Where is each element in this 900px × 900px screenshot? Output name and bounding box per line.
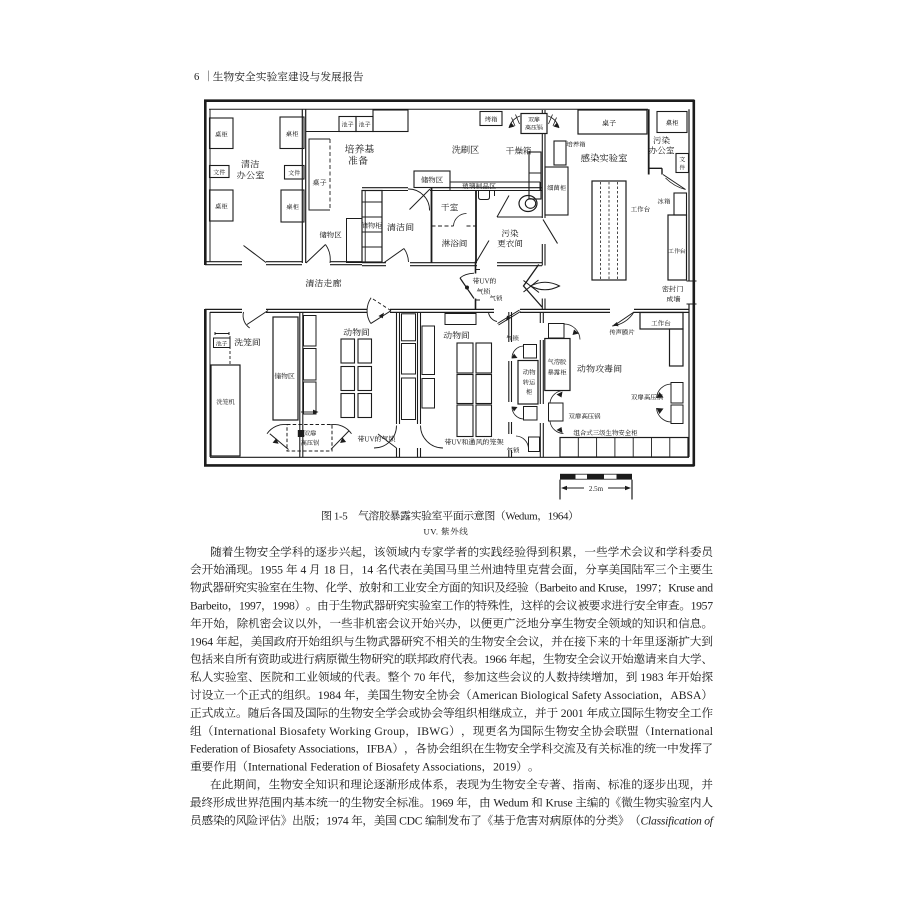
svg-text:柜: 柜 bbox=[526, 388, 533, 396]
svg-text:工作台: 工作台 bbox=[651, 320, 671, 328]
svg-text:带UV的气锁: 带UV的气锁 bbox=[357, 435, 395, 444]
svg-text:烤箱: 烤箱 bbox=[485, 116, 498, 124]
svg-text:高压锅: 高压锅 bbox=[300, 439, 320, 447]
svg-text:员感染的风险评估》出版；1974 年，美国 CDC 编制发布: 员感染的风险评估》出版；1974 年，美国 CDC 编制发布了《基于危害对病原体… bbox=[190, 813, 715, 827]
svg-text:办公室: 办公室 bbox=[237, 171, 265, 181]
svg-text:文件: 文件 bbox=[213, 169, 225, 177]
svg-text:生物安全实验室建设与发展报告: 生物安全实验室建设与发展报告 bbox=[213, 70, 364, 83]
svg-text:2.5m: 2.5m bbox=[589, 485, 604, 493]
svg-text:动物间: 动物间 bbox=[343, 328, 370, 338]
svg-text:在此期间，生物安全知识和理论逐渐形成体系，表现为生物安全专著: 在此期间，生物安全知识和理论逐渐形成体系，表现为生物安全专著、指南、标准的逐步出… bbox=[210, 778, 713, 792]
svg-text:培养箱: 培养箱 bbox=[566, 141, 586, 149]
svg-text:清洁: 清洁 bbox=[241, 160, 260, 170]
svg-text:培养基: 培养基 bbox=[345, 144, 375, 156]
svg-text:淋浴间: 淋浴间 bbox=[442, 239, 468, 249]
svg-text:暴露柜: 暴露柜 bbox=[548, 369, 568, 377]
svg-text:最终形成世界范围内基本统一的生物安全标准。1969 年，由: 最终形成世界范围内基本统一的生物安全标准。1969 年，由 Wedum 和 Kr… bbox=[190, 795, 713, 809]
svg-text:储物区: 储物区 bbox=[421, 176, 444, 185]
svg-text:带UV的: 带UV的 bbox=[472, 277, 496, 286]
svg-text:6: 6 bbox=[194, 72, 199, 83]
svg-text:洗笼间: 洗笼间 bbox=[234, 338, 261, 348]
svg-text:气锁: 气锁 bbox=[490, 295, 503, 303]
svg-text:1964 年起，美国政府开始组织与生物武器研究不相关的生物安: 1964 年起，美国政府开始组织与生物武器研究不相关的生物安全会议，并在接下来的… bbox=[190, 634, 713, 648]
svg-text:文件: 文件 bbox=[288, 169, 300, 177]
svg-text:洗刷区: 洗刷区 bbox=[452, 145, 480, 155]
svg-text:Barbeito，1997，1998）。由于生物武器研究实验: Barbeito，1997，1998）。由于生物武器研究实验室工作的特殊性，这样… bbox=[190, 599, 713, 613]
svg-text:气锁: 气锁 bbox=[506, 335, 519, 343]
svg-text:桌子: 桌子 bbox=[602, 119, 616, 128]
svg-text:桌子: 桌子 bbox=[313, 178, 327, 187]
svg-text:私人实验室、医院和工业领域的代表。整个 70 年代，参加这些: 私人实验室、医院和工业领域的代表。整个 70 年代，参加这些会议的人数持续增加，… bbox=[190, 670, 713, 684]
svg-text:洗笼机: 洗笼机 bbox=[216, 398, 235, 406]
svg-text:UV. 紫外线: UV. 紫外线 bbox=[424, 527, 469, 537]
svg-text:桌柜: 桌柜 bbox=[666, 119, 679, 127]
svg-text:随着生物安全学科的逐步兴起，该领域内专家学者的实践经验得到积: 随着生物安全学科的逐步兴起，该领域内专家学者的实践经验得到积累，一些学术会议和学… bbox=[210, 545, 713, 559]
svg-text:储物区: 储物区 bbox=[274, 372, 295, 381]
svg-text:双扉: 双扉 bbox=[304, 430, 317, 438]
svg-text:感染实验室: 感染实验室 bbox=[581, 153, 628, 165]
svg-text:重要作用（International Federation: 重要作用（International Federation of Biosafe… bbox=[190, 761, 540, 774]
svg-text:带UV和通风的笼架: 带UV和通风的笼架 bbox=[444, 438, 504, 447]
svg-text:气锁: 气锁 bbox=[477, 287, 491, 296]
svg-text:双扉: 双扉 bbox=[528, 117, 540, 124]
svg-text:清洁间: 清洁间 bbox=[387, 223, 414, 233]
svg-text:高压锅: 高压锅 bbox=[524, 125, 543, 132]
svg-text:双扉高压锅: 双扉高压锅 bbox=[569, 413, 602, 421]
svg-text:池子: 池子 bbox=[358, 121, 371, 129]
svg-text:讨设立一个正式的组织。1984 年，美国生物安全协会（Ame: 讨设立一个正式的组织。1984 年，美国生物安全协会（American Biol… bbox=[190, 688, 713, 702]
svg-text:气溶胶: 气溶胶 bbox=[548, 358, 568, 366]
svg-text:件: 件 bbox=[679, 164, 685, 172]
svg-text:更衣间: 更衣间 bbox=[497, 239, 523, 249]
svg-text:清洁走廊: 清洁走廊 bbox=[305, 279, 341, 289]
svg-text:桌柜: 桌柜 bbox=[286, 130, 299, 138]
svg-text:办公室: 办公室 bbox=[649, 146, 675, 156]
svg-text:污染: 污染 bbox=[501, 229, 519, 239]
svg-text:动物攻毒间: 动物攻毒间 bbox=[577, 364, 622, 374]
svg-text:桌柜: 桌柜 bbox=[286, 203, 299, 211]
svg-text:准备: 准备 bbox=[348, 155, 368, 167]
svg-text:转运: 转运 bbox=[523, 379, 536, 387]
svg-text:工作台: 工作台 bbox=[631, 206, 651, 214]
svg-text:正式成立。随后各国及国际的生物安全学会或协会等组织相继成立，: 正式成立。随后各国及国际的生物安全学会或协会等组织相继成立，并于 2001 年成… bbox=[190, 706, 713, 720]
svg-text:包括来自所有资助或进行病原微生物研究的联邦政府代表。1966: 包括来自所有资助或进行病原微生物研究的联邦政府代表。1966 年起，生物安全会议… bbox=[190, 652, 713, 666]
svg-text:桌柜: 桌柜 bbox=[215, 203, 228, 211]
svg-text:动物间: 动物间 bbox=[443, 331, 470, 341]
svg-text:文: 文 bbox=[679, 157, 685, 164]
svg-text:玻璃制品区: 玻璃制品区 bbox=[462, 182, 496, 190]
svg-text:成墙: 成墙 bbox=[667, 296, 681, 304]
svg-text:气锁: 气锁 bbox=[507, 447, 520, 455]
svg-text:池子: 池子 bbox=[216, 339, 228, 347]
svg-text:冰箱: 冰箱 bbox=[657, 198, 671, 206]
svg-text:双扉高压锅: 双扉高压锅 bbox=[631, 394, 664, 402]
svg-text:会开始涌现。1955 年 4 月 18 日，14 名代表在美: 会开始涌现。1955 年 4 月 18 日，14 名代表在美国马里兰州迪特里克营… bbox=[190, 563, 713, 577]
svg-text:池子: 池子 bbox=[341, 121, 354, 129]
svg-text:工作台: 工作台 bbox=[667, 247, 686, 255]
svg-text:物武器研究实验室在生物、化学、放射和工业安全方面的知识及经验: 物武器研究实验室在生物、化学、放射和工业安全方面的知识及经验（Barbeito … bbox=[190, 581, 713, 595]
svg-text:Federation of Biosafety Associ: Federation of Biosafety Associations，IFB… bbox=[190, 742, 713, 756]
svg-text:组合式三级生物安全柜: 组合式三级生物安全柜 bbox=[574, 429, 639, 437]
svg-text:传声膜片: 传声膜片 bbox=[609, 329, 635, 337]
svg-text:年开始，除机密会议以外，一些非机密会议开始兴办，以便更广泛地: 年开始，除机密会议以外，一些非机密会议开始兴办，以便更广泛地分享生物安全领域的知… bbox=[190, 616, 713, 630]
svg-text:桌柜: 桌柜 bbox=[215, 131, 228, 139]
svg-text:组（International Biosafety Work: 组（International Biosafety Working Group，… bbox=[190, 724, 713, 738]
svg-text:储物区: 储物区 bbox=[319, 231, 342, 240]
svg-text:细菌柜: 细菌柜 bbox=[546, 184, 566, 192]
svg-text:动物: 动物 bbox=[523, 369, 536, 377]
svg-text:储物柜: 储物柜 bbox=[361, 221, 382, 230]
svg-text:密封门: 密封门 bbox=[662, 286, 684, 294]
svg-text:干燥箱: 干燥箱 bbox=[506, 146, 532, 156]
svg-text:污染: 污染 bbox=[653, 136, 671, 146]
svg-text:干室: 干室 bbox=[441, 203, 459, 213]
svg-text:图 1-5 气溶胶暴露实验室平面示意图（Wedum，1964: 图 1-5 气溶胶暴露实验室平面示意图（Wedum，1964） bbox=[321, 510, 579, 523]
